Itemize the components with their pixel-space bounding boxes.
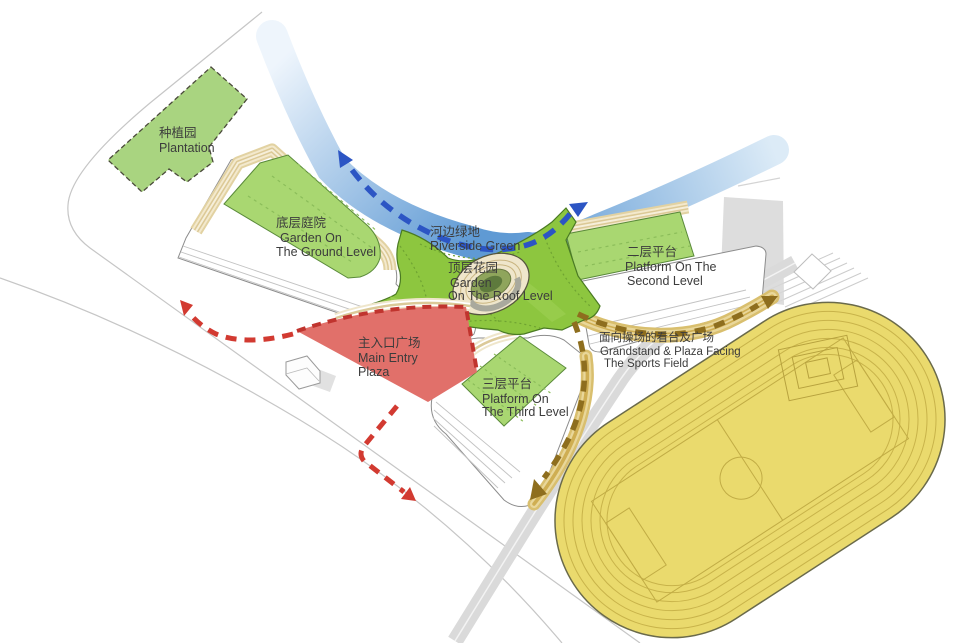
label-second-platform-zh: 二层平台: [627, 244, 677, 259]
label-roof-garden-en1: Garden: [450, 276, 492, 290]
label-roof-garden-en2: On The Roof Level: [448, 289, 553, 303]
label-plantation-en: Plantation: [159, 141, 215, 155]
service-hut: [286, 356, 336, 392]
entry-arrow-down: [361, 406, 416, 501]
label-ground-garden-en2: The Ground Level: [276, 245, 376, 259]
label-grandstand-en2: The Sports Field: [604, 358, 688, 370]
label-second-platform-en1: Platform On The: [625, 260, 717, 274]
label-main-entry-en2: Plaza: [358, 365, 389, 379]
label-ground-garden-en1: Garden On: [280, 231, 342, 245]
label-third-platform-en1: Platform On: [482, 392, 549, 406]
label-roof-garden-zh: 顶层花园: [448, 260, 498, 275]
label-main-entry-zh: 主入口广场: [358, 336, 421, 350]
label-third-platform-zh: 三层平台: [482, 376, 532, 391]
label-third-platform-en2: The Third Level: [482, 405, 569, 419]
label-riverside-zh: 河边绿地: [430, 224, 481, 239]
arrowhead-downstream: [569, 202, 588, 217]
label-plantation-zh: 种植园: [159, 125, 197, 140]
site-plan-diagram: 种植园 Plantation 底层庭院 Garden On The Ground…: [0, 0, 960, 643]
entry-arrow-left: [180, 300, 293, 340]
label-grandstand-zh: 面向操场的看台及广场: [599, 330, 714, 344]
label-main-entry-en1: Main Entry: [358, 351, 418, 365]
label-grandstand-en1: Grandstand & Plaza Facing: [600, 346, 741, 358]
label-riverside-en: Riverside Green: [430, 239, 520, 253]
site-plan-canvas: 种植园 Plantation 底层庭院 Garden On The Ground…: [0, 0, 960, 643]
label-second-platform-en2: Second Level: [627, 274, 703, 288]
label-ground-garden-zh: 底层庭院: [276, 215, 327, 230]
